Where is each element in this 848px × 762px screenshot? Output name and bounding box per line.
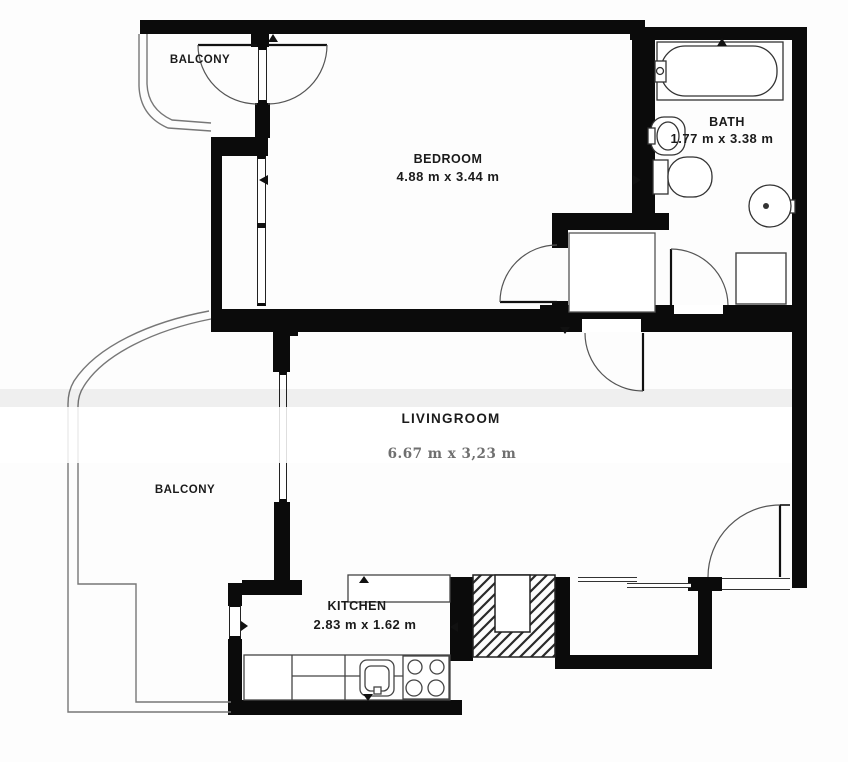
hall-wardrobe <box>569 233 655 312</box>
room-label-bedroom: BEDROOM <box>368 152 528 166</box>
balcony-left-railing <box>68 311 231 712</box>
bedroom-door-swing <box>500 245 557 302</box>
room-label-bath: BATH <box>647 115 807 129</box>
ventilation-shaft <box>473 575 555 657</box>
watermark-band-shadow <box>0 389 792 407</box>
entrance-door-swing <box>708 505 790 577</box>
floor-plan: BALCONY BEDROOM 4.88 m x 3.44 m BATH 1.7… <box>0 0 848 762</box>
stove <box>403 656 449 699</box>
room-dims-livingroom: 6.67 m x 3,23 m <box>362 446 542 462</box>
room-dims-kitchen: 2.83 m x 1.62 m <box>275 617 455 632</box>
room-label-balcony-left: BALCONY <box>145 484 225 496</box>
room-label-livingroom: LIVINGROOM <box>361 411 541 426</box>
bathtub <box>655 42 783 100</box>
room-dims-bath: 1.77 m x 3.38 m <box>642 131 802 146</box>
bath-door-swing <box>671 249 728 305</box>
shower-tray <box>736 253 786 304</box>
room-label-balcony-top: BALCONY <box>160 54 240 66</box>
kitchen-sink <box>360 660 394 696</box>
balcony-door-swing-right <box>268 45 327 104</box>
room-dims-bedroom: 4.88 m x 3.44 m <box>368 169 528 184</box>
livingroom-door-swing <box>585 333 643 391</box>
washbasin-round <box>749 185 795 227</box>
room-label-kitchen: KITCHEN <box>277 599 437 613</box>
toilet <box>653 157 712 197</box>
balcony-top-railing <box>139 34 211 131</box>
